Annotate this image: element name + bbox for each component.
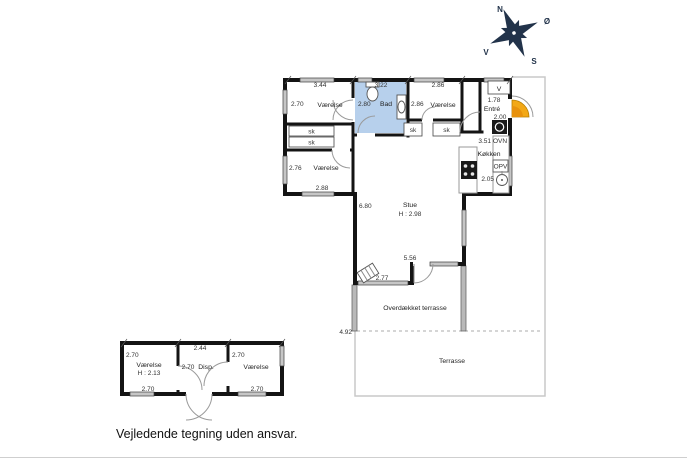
- closet-label: sk: [308, 129, 315, 136]
- door-gap: [351, 98, 355, 122]
- dimension-label: 2.70: [126, 352, 139, 359]
- door-gap: [226, 362, 230, 386]
- dimension-label: 2.70: [291, 101, 304, 108]
- terrace-door-swing: [414, 264, 433, 283]
- entrance-door-gap: [508, 99, 512, 118]
- dimension-label: 2.70: [182, 364, 195, 371]
- window-marker: [302, 192, 334, 196]
- dimension-label: 2.88: [316, 185, 329, 192]
- room-label-bedroom-tl: Værelse: [317, 102, 343, 109]
- door-gap: [176, 366, 180, 390]
- terrace-post-left: [352, 285, 357, 331]
- dimension-label: 2.77: [376, 275, 389, 282]
- window-marker: [283, 90, 287, 114]
- door-gap: [357, 133, 375, 137]
- room-label-bedroom-bl: Værelse: [313, 165, 339, 172]
- dimension-label: 4.92: [339, 329, 352, 336]
- dishwasher-label: OPV: [494, 164, 508, 171]
- dimension-label: 3.22: [375, 82, 388, 89]
- compass-north-label: N: [497, 5, 503, 14]
- dimension-label: 2.70: [251, 386, 264, 393]
- dimension-label: 2.80: [358, 101, 371, 108]
- bath-sink-icon: [398, 101, 405, 113]
- floor-plan-drawing: 3.44 2.70 Værelse 3.22 2.80 Bad 2.86 2.8…: [0, 0, 687, 457]
- window-marker: [462, 210, 466, 246]
- compass-west-label: V: [483, 48, 489, 57]
- window-marker: [280, 346, 284, 366]
- dimension-label: 2.76: [289, 165, 302, 172]
- dimension-label: 2.70: [142, 386, 155, 393]
- ceiling-height-label: H : 2.13: [138, 370, 161, 377]
- closet-label: sk: [308, 140, 315, 147]
- toilet-icon: [367, 87, 378, 101]
- dimension-label: 2.00: [494, 114, 507, 121]
- dimension-label: 2.44: [194, 345, 207, 352]
- window-marker: [430, 262, 458, 266]
- annex-entry-door-gap: [186, 391, 212, 397]
- terrace-label: Terrasse: [439, 358, 465, 365]
- room-label-living: Stue: [403, 202, 417, 209]
- closet-label: sk: [410, 127, 417, 134]
- disclaimer-text: Vejledende tegning uden ansvar.: [116, 427, 297, 441]
- room-label-kitchen: Køkken: [477, 151, 500, 158]
- window-marker: [358, 78, 372, 82]
- room-label-entry: Entré: [484, 106, 500, 113]
- burner-icon: [471, 164, 475, 168]
- oven-icon: [492, 120, 507, 134]
- burner-icon: [464, 172, 468, 176]
- room-label-bedroom-tr: Værelse: [430, 102, 456, 109]
- dimension-label: 1.78: [488, 97, 501, 104]
- room-label-annex-left: Værelse: [136, 362, 162, 369]
- door-gap: [422, 118, 433, 122]
- door-gap: [332, 148, 350, 152]
- room-label-bathroom: Bad: [380, 101, 392, 108]
- compass-south-label: S: [531, 57, 537, 66]
- oven-label: OVN: [493, 138, 507, 145]
- dimension-label: 6.80: [359, 203, 372, 210]
- covered-terrace-label: Overdækket terrasse: [383, 305, 447, 312]
- window-marker: [283, 156, 287, 184]
- dimension-label: 3.44: [314, 82, 327, 89]
- burner-icon: [464, 164, 468, 168]
- closet-label: sk: [443, 127, 450, 134]
- terrace-door-gap: [413, 262, 430, 266]
- burner-icon: [471, 172, 475, 176]
- terrace-post-right: [461, 266, 466, 331]
- kitchen-sink-drain: [501, 179, 503, 181]
- dimension-label: 3.51: [478, 138, 491, 145]
- room-label-annex-storage: Disp.: [198, 364, 214, 371]
- entry-cabinet-label: V: [497, 86, 502, 93]
- dimension-label: 2.70: [232, 352, 245, 359]
- stove-icon: [461, 161, 477, 179]
- ceiling-height-label: H : 2.98: [399, 211, 422, 218]
- dimension-label: 2.86: [411, 101, 424, 108]
- dimension-label: 2.86: [432, 82, 445, 89]
- dimension-label: 2.05: [481, 176, 494, 183]
- compass-rose-icon: [480, 0, 549, 67]
- dimension-label: 5.56: [404, 255, 417, 262]
- compass-east-label: Ø: [544, 17, 550, 26]
- room-label-annex-right: Værelse: [243, 364, 269, 371]
- floor-plan-page: 3.44 2.70 Værelse 3.22 2.80 Bad 2.86 2.8…: [0, 0, 687, 458]
